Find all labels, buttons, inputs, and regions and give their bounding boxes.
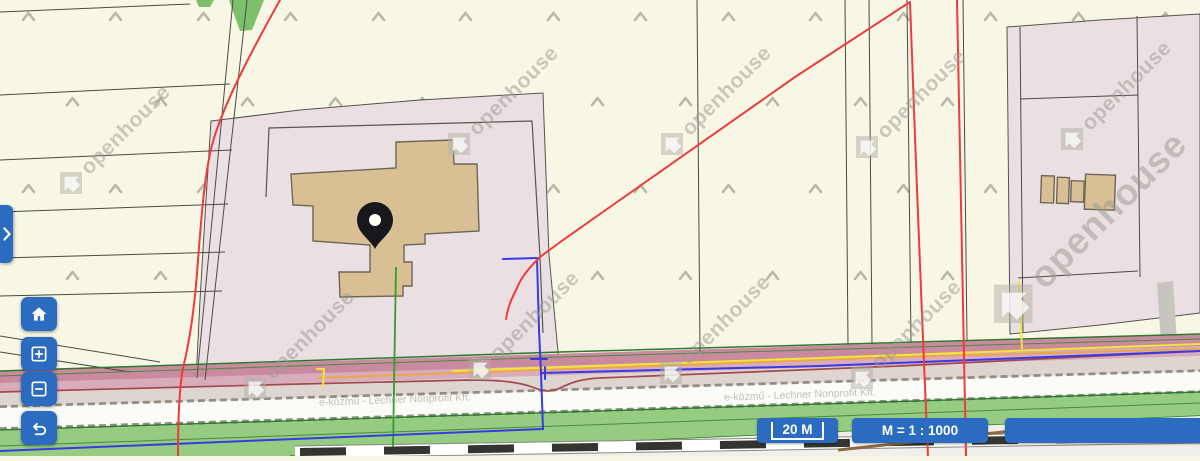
sidebar-toggle-button[interactable] bbox=[0, 205, 13, 263]
undo-arrow-icon bbox=[29, 418, 49, 438]
undo-button[interactable] bbox=[21, 411, 57, 445]
scale-ratio-label: M = 1 : 1000 bbox=[882, 423, 958, 438]
bottom-toolbar-bar bbox=[1005, 418, 1200, 443]
plus-square-icon bbox=[29, 344, 49, 364]
zoom-out-button[interactable] bbox=[21, 372, 57, 406]
scale-bar: 20 M bbox=[757, 418, 838, 443]
zoom-in-button[interactable] bbox=[21, 337, 57, 371]
home-icon bbox=[29, 304, 49, 324]
map-canvas[interactable]: openhouse bbox=[0, 0, 1200, 456]
minus-square-icon bbox=[29, 379, 49, 399]
scale-bracket: 20 M bbox=[771, 422, 823, 440]
chevron-right-icon bbox=[3, 227, 11, 241]
scale-bar-label: 20 M bbox=[782, 422, 812, 437]
home-button[interactable] bbox=[21, 297, 57, 331]
map-viewport[interactable]: openhouse bbox=[0, 0, 1200, 456]
scale-ratio-badge: M = 1 : 1000 bbox=[852, 418, 988, 443]
